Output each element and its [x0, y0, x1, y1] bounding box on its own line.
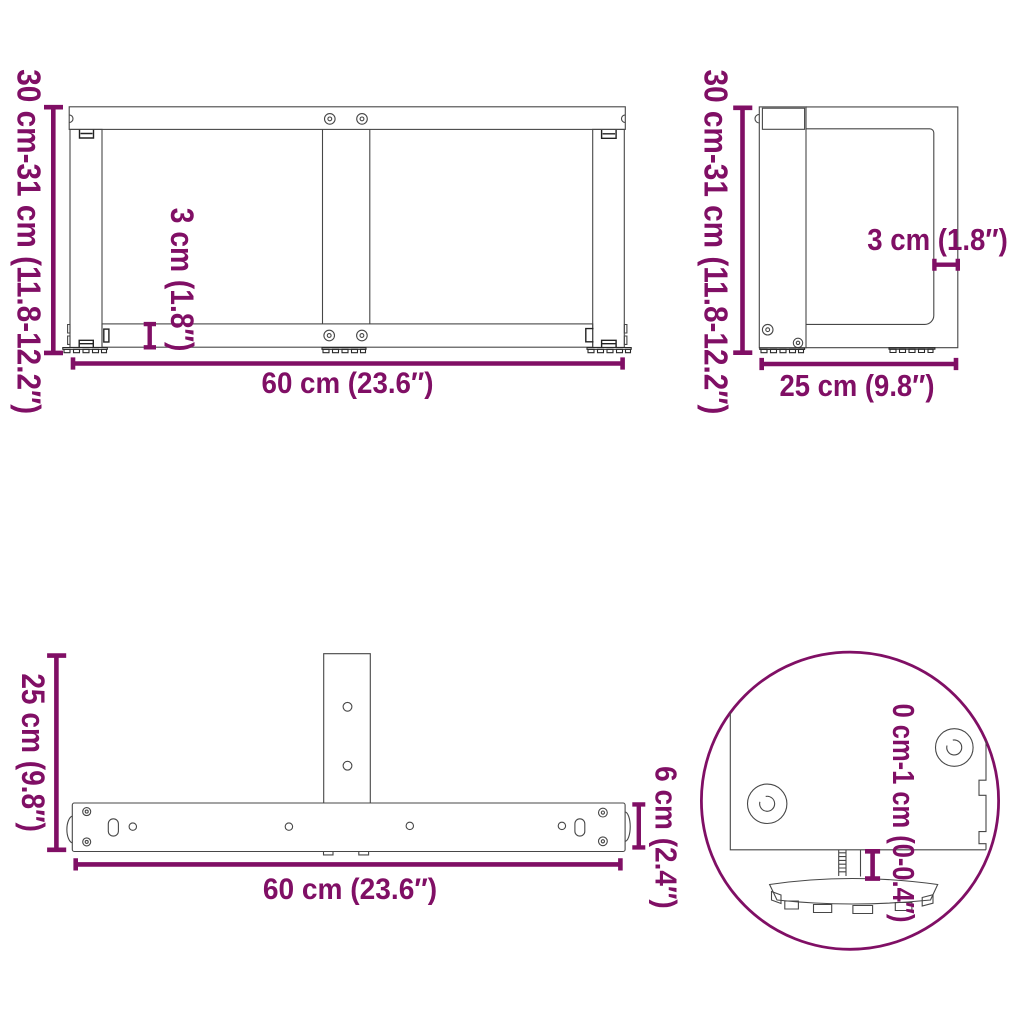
svg-text:6 cm (2.4″): 6 cm (2.4″)	[648, 766, 683, 909]
svg-text:0 cm-1 cm (0-0.4″): 0 cm-1 cm (0-0.4″)	[885, 704, 920, 923]
svg-text:60 cm (23.6″): 60 cm (23.6″)	[262, 367, 434, 400]
svg-text:25 cm (9.8″): 25 cm (9.8″)	[780, 370, 935, 404]
svg-text:30 cm-31 cm (11.8-12.2″): 30 cm-31 cm (11.8-12.2″)	[10, 69, 47, 414]
svg-text:3 cm (1.8″): 3 cm (1.8″)	[164, 208, 199, 352]
svg-text:30 cm-31 cm (11.8-12.2″): 30 cm-31 cm (11.8-12.2″)	[697, 70, 734, 415]
svg-text:3 cm (1.8″): 3 cm (1.8″)	[867, 223, 1008, 258]
svg-text:25 cm (9.8″): 25 cm (9.8″)	[15, 673, 50, 832]
svg-text:60 cm (23.6″): 60 cm (23.6″)	[263, 873, 437, 906]
